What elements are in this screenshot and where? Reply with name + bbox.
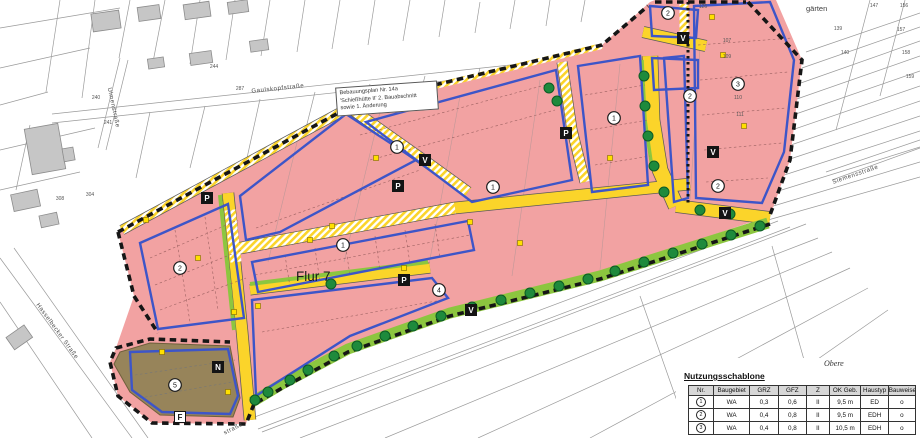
- zone-marker-number: 1: [612, 116, 616, 123]
- legend-col-header: Baugebiet: [713, 386, 749, 396]
- v-marker: V: [708, 147, 719, 158]
- legend-cell: II: [807, 396, 830, 409]
- zone-marker: 1: [337, 239, 350, 252]
- zone-marker-number: 1: [491, 185, 495, 192]
- legend-zone-number: 2: [696, 410, 706, 420]
- p-marker: P: [399, 275, 410, 286]
- nutzungsschablone-table: Nr.BaugebietGRZGFZZOK Geb.HaustypBauweis…: [688, 385, 916, 435]
- zone-marker-number: 2: [178, 266, 182, 273]
- flur-label: Flur 7: [296, 269, 331, 284]
- legend-cell: ED: [861, 396, 888, 409]
- legend-cell: 0,3: [750, 396, 778, 409]
- legend-row: 2WA0,40,8II9,5 mEDHo: [689, 409, 916, 422]
- tree-icon: [303, 365, 313, 375]
- lamp-icon: [742, 124, 747, 129]
- tree-icon: [755, 221, 765, 231]
- lamp-icon: [196, 256, 201, 261]
- tree-icon: [668, 248, 678, 258]
- tree-icon: [380, 331, 390, 341]
- parcel-number: 107: [723, 38, 732, 44]
- parcel-number: 287: [236, 86, 245, 92]
- lamp-icon: [608, 156, 613, 161]
- marker-letter: F: [178, 413, 183, 422]
- marker-letter: P: [204, 194, 210, 203]
- lamp-icon: [160, 350, 165, 355]
- tree-icon: [525, 288, 535, 298]
- zone-marker-number: 1: [395, 145, 399, 152]
- tree-icon: [643, 131, 653, 141]
- lamp-icon: [468, 220, 473, 225]
- legend-cell: 1: [689, 396, 714, 409]
- tree-icon: [552, 96, 562, 106]
- parcel-number: 126: [699, 4, 708, 10]
- tree-icon: [408, 321, 418, 331]
- legend-cell: o: [888, 422, 915, 435]
- legend-col-header: GFZ: [778, 386, 806, 396]
- lamp-icon: [402, 266, 407, 271]
- parcel-number: 159: [906, 74, 915, 80]
- tree-icon: [285, 375, 295, 385]
- tree-icon: [695, 205, 705, 215]
- nutzungsschablone-panel: Obere Nutzungsschablone Nr.BaugebietGRZG…: [676, 358, 920, 438]
- parcel-number: 157: [897, 27, 906, 33]
- legend-row: 1WA0,30,6II9,5 mEDo: [689, 396, 916, 409]
- parcel-number: 109: [723, 54, 732, 60]
- tree-icon: [544, 83, 554, 93]
- parcel-number: 244: [210, 64, 219, 70]
- zone-marker: 3: [732, 78, 745, 91]
- zone-marker-number: 4: [437, 288, 441, 295]
- legend-cell: 0,4: [750, 409, 778, 422]
- parcel-number: 304: [86, 192, 95, 198]
- zone-marker-number: 3: [736, 82, 740, 89]
- zone-marker: 1: [391, 141, 404, 154]
- parcel-number: 140: [841, 50, 850, 56]
- p-marker: P: [561, 128, 572, 139]
- zone-marker-number: 2: [688, 94, 692, 101]
- zone-marker: 4: [433, 284, 446, 297]
- p-marker: P: [202, 193, 213, 204]
- legend-zone-number: 3: [696, 423, 706, 433]
- lamp-icon: [256, 304, 261, 309]
- marker-letter: V: [468, 306, 474, 315]
- v-marker: V: [678, 33, 689, 44]
- zoning-plan-viewport: 2402412442873043081261071091101111471561…: [0, 0, 920, 438]
- zone-marker-number: 2: [666, 11, 670, 18]
- zone-marker: 1: [608, 112, 621, 125]
- v-marker: V: [466, 305, 477, 316]
- zone-marker: 2: [712, 180, 725, 193]
- parcel-number: 139: [834, 26, 843, 32]
- parcel-number: 110: [734, 95, 742, 101]
- lamp-icon: [308, 238, 313, 243]
- tree-icon: [639, 71, 649, 81]
- tree-icon: [263, 387, 273, 397]
- zone-marker-number: 5: [173, 383, 177, 390]
- parcel-number: 111: [736, 112, 744, 118]
- marker-letter: P: [563, 129, 569, 138]
- legend-cell: 0,6: [778, 396, 806, 409]
- marker-letter: V: [710, 148, 716, 157]
- lamp-icon: [518, 241, 523, 246]
- legend-col-header: OK Geb.: [829, 386, 861, 396]
- lamp-icon: [710, 15, 715, 20]
- tree-icon: [436, 311, 446, 321]
- legend-cell: 2: [689, 409, 714, 422]
- legend-cell: WA: [713, 396, 749, 409]
- tree-icon: [639, 257, 649, 267]
- area-label-gardens: gärten: [806, 4, 827, 13]
- zone-marker-number: 1: [341, 243, 345, 250]
- legend-cell: 9,5 m: [829, 409, 861, 422]
- legend-cell: o: [888, 409, 915, 422]
- parcel-number: 308: [56, 196, 65, 202]
- legend-annotation: Obere: [824, 359, 844, 368]
- zone-marker: 2: [174, 262, 187, 275]
- legend-row: 3WA0,40,8II10,5 mEDHo: [689, 422, 916, 435]
- legend-zone-number: 1: [696, 397, 706, 407]
- legend-cell: 9,5 m: [829, 396, 861, 409]
- zone-marker: 5: [169, 379, 182, 392]
- marker-letter: P: [395, 182, 401, 191]
- legend-col-header: Z: [807, 386, 830, 396]
- lamp-icon: [144, 218, 149, 223]
- v-marker: V: [420, 155, 431, 166]
- parcel-number: 241: [104, 120, 113, 126]
- lamp-icon: [226, 390, 231, 395]
- p-marker: P: [393, 181, 404, 192]
- f-marker: F: [175, 412, 186, 423]
- lamp-icon: [374, 156, 379, 161]
- marker-letter: V: [680, 34, 686, 43]
- marker-letter: V: [422, 156, 428, 165]
- tree-icon: [659, 187, 669, 197]
- tree-icon: [329, 351, 339, 361]
- zone-marker: 1: [487, 181, 500, 194]
- v-marker: V: [720, 208, 731, 219]
- legend-cell: II: [807, 409, 830, 422]
- legend-title: Nutzungsschablone: [684, 371, 765, 381]
- legend-col-header: Nr.: [689, 386, 714, 396]
- tree-icon: [583, 274, 593, 284]
- legend-cell: II: [807, 422, 830, 435]
- tree-icon: [250, 395, 260, 405]
- zone-marker: 2: [662, 7, 675, 20]
- legend-cell: WA: [713, 422, 749, 435]
- tree-icon: [554, 281, 564, 291]
- parcel-number: 240: [92, 95, 101, 101]
- tree-icon: [697, 239, 707, 249]
- parcel-number: 147: [870, 3, 879, 9]
- tree-icon: [640, 101, 650, 111]
- zone-marker-number: 2: [716, 184, 720, 191]
- legend-cell: WA: [713, 409, 749, 422]
- marker-letter: N: [215, 363, 221, 372]
- tree-icon: [649, 161, 659, 171]
- legend-cell: EDH: [861, 422, 888, 435]
- tree-icon: [352, 341, 362, 351]
- legend-col-header: Bauweise: [888, 386, 915, 396]
- legend-cell: 3: [689, 422, 714, 435]
- legend-col-header: Haustyp: [861, 386, 888, 396]
- tree-icon: [496, 295, 506, 305]
- marker-letter: P: [401, 276, 407, 285]
- legend-cell: EDH: [861, 409, 888, 422]
- tree-icon: [610, 266, 620, 276]
- marker-letter: V: [722, 209, 728, 218]
- lamp-icon: [330, 224, 335, 229]
- legend-cell: 10,5 m: [829, 422, 861, 435]
- tree-icon: [726, 230, 736, 240]
- parcel-number: 156: [900, 3, 909, 9]
- legend-cell: o: [888, 396, 915, 409]
- n-marker: N: [213, 362, 224, 373]
- zone-marker: 2: [684, 90, 697, 103]
- legend-cell: 0,8: [778, 409, 806, 422]
- parcel-number: 158: [902, 50, 911, 56]
- legend-cell: 0,4: [750, 422, 778, 435]
- lamp-icon: [232, 310, 237, 315]
- legend-col-header: GRZ: [750, 386, 778, 396]
- legend-cell: 0,8: [778, 422, 806, 435]
